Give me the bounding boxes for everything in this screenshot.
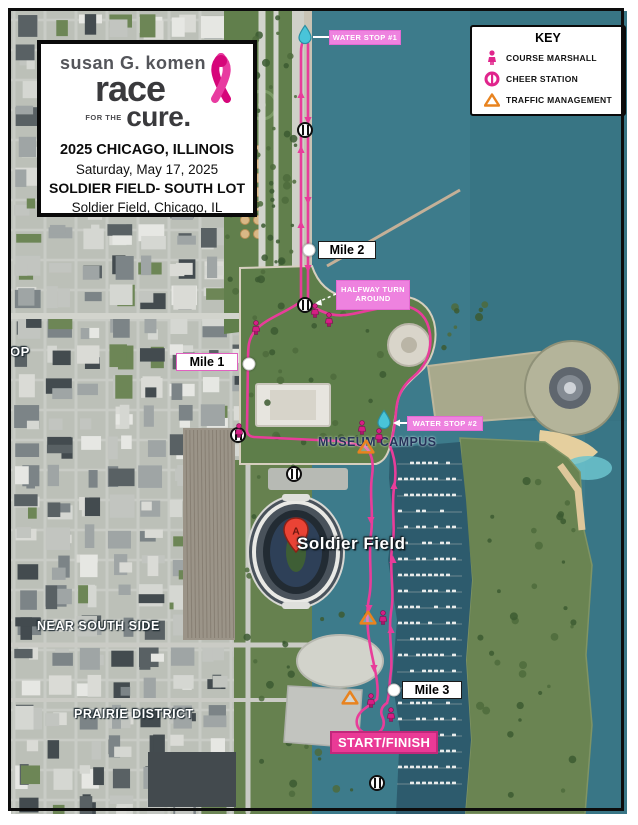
traffic-management-icon [478,93,506,107]
key-title: KEY [478,31,618,45]
planetarium-dome [564,382,576,394]
shedd-dome [401,337,417,353]
komen-logo: susan G. komen race FOR THE cure. [41,53,253,131]
prairie-district-label: PRAIRIE DISTRICT [74,707,194,721]
key-label: TRAFFIC MANAGEMENT [506,95,612,105]
mile-3-label: Mile 3 [402,681,462,699]
course-marshall-icon [357,420,368,440]
map-viewport: A WATER STOP #1 WATER STOP #2 HALFWAY TU… [11,11,627,814]
traffic-management-icon [360,610,377,630]
cheer-station-icon [286,466,302,482]
brand-cure: cure. [126,101,190,132]
traffic-management-icon [342,690,359,710]
water-stop-icon [298,25,313,50]
event-line-2: Saturday, May 17, 2025 [41,160,253,179]
field-museum-roof [270,390,316,420]
course-marshall-icon [378,610,389,630]
course-marshall-icon [366,693,377,713]
course-marshall-icon [374,428,385,448]
event-line-1: 2025 CHICAGO, ILLINOIS [41,141,253,160]
pink-ribbon-icon [199,53,243,120]
water-stop-1-label: WATER STOP #1 [329,30,401,45]
large-roof [148,752,236,807]
start-finish-label: START/FINISH [330,731,438,754]
mile-marker-dot [303,244,316,257]
key-row-traffic-management: TRAFFIC MANAGEMENT [478,89,618,110]
cheer-station-icon [297,122,313,138]
water-stop-2-label: WATER STOP #2 [407,416,483,431]
map-key: KEY COURSE MARSHALL CHEER STATION [470,25,626,116]
key-label: CHEER STATION [506,74,578,84]
near-south-side-label: NEAR SOUTH SIDE [37,619,160,633]
key-label: COURSE MARSHALL [506,53,597,63]
brand-for-the: FOR THE [85,113,121,122]
course-marshall-icon [251,320,262,340]
event-line-3: SOLDIER FIELD- SOUTH LOT [41,179,253,198]
course-map-page: A WATER STOP #1 WATER STOP #2 HALFWAY TU… [0,0,638,825]
course-marshall-icon [324,312,335,332]
mile-marker-dot [388,684,401,697]
key-row-cheer-station: CHEER STATION [478,68,618,89]
loop-label-partial: OP [11,344,30,359]
map-layer: A WATER STOP #1 WATER STOP #2 HALFWAY TU… [11,11,627,814]
cheer-station-icon [478,71,506,87]
brand-race: race [41,74,219,104]
course-marshall-icon [310,303,321,323]
mile-1-label: Mile 1 [176,353,238,371]
event-line-4: Soldier Field, Chicago, IL [41,198,253,217]
key-row-course-marshall: COURSE MARSHALL [478,47,618,68]
course-marshall-icon [478,50,506,66]
soldier-field-label: Soldier Field [297,534,406,554]
course-marshall-icon [234,423,245,443]
burnham-harbor [388,442,472,814]
mile-2-label: Mile 2 [318,241,376,259]
halfway-turnaround-label: HALFWAY TURN AROUND [336,280,410,310]
north-plaza [268,468,348,490]
mile-marker-dot [243,358,256,371]
course-marshall-icon [386,707,397,727]
cheer-station-icon [369,775,385,791]
traffic-management-icon [358,439,375,459]
event-info-box: susan G. komen race FOR THE cure. [37,40,257,217]
